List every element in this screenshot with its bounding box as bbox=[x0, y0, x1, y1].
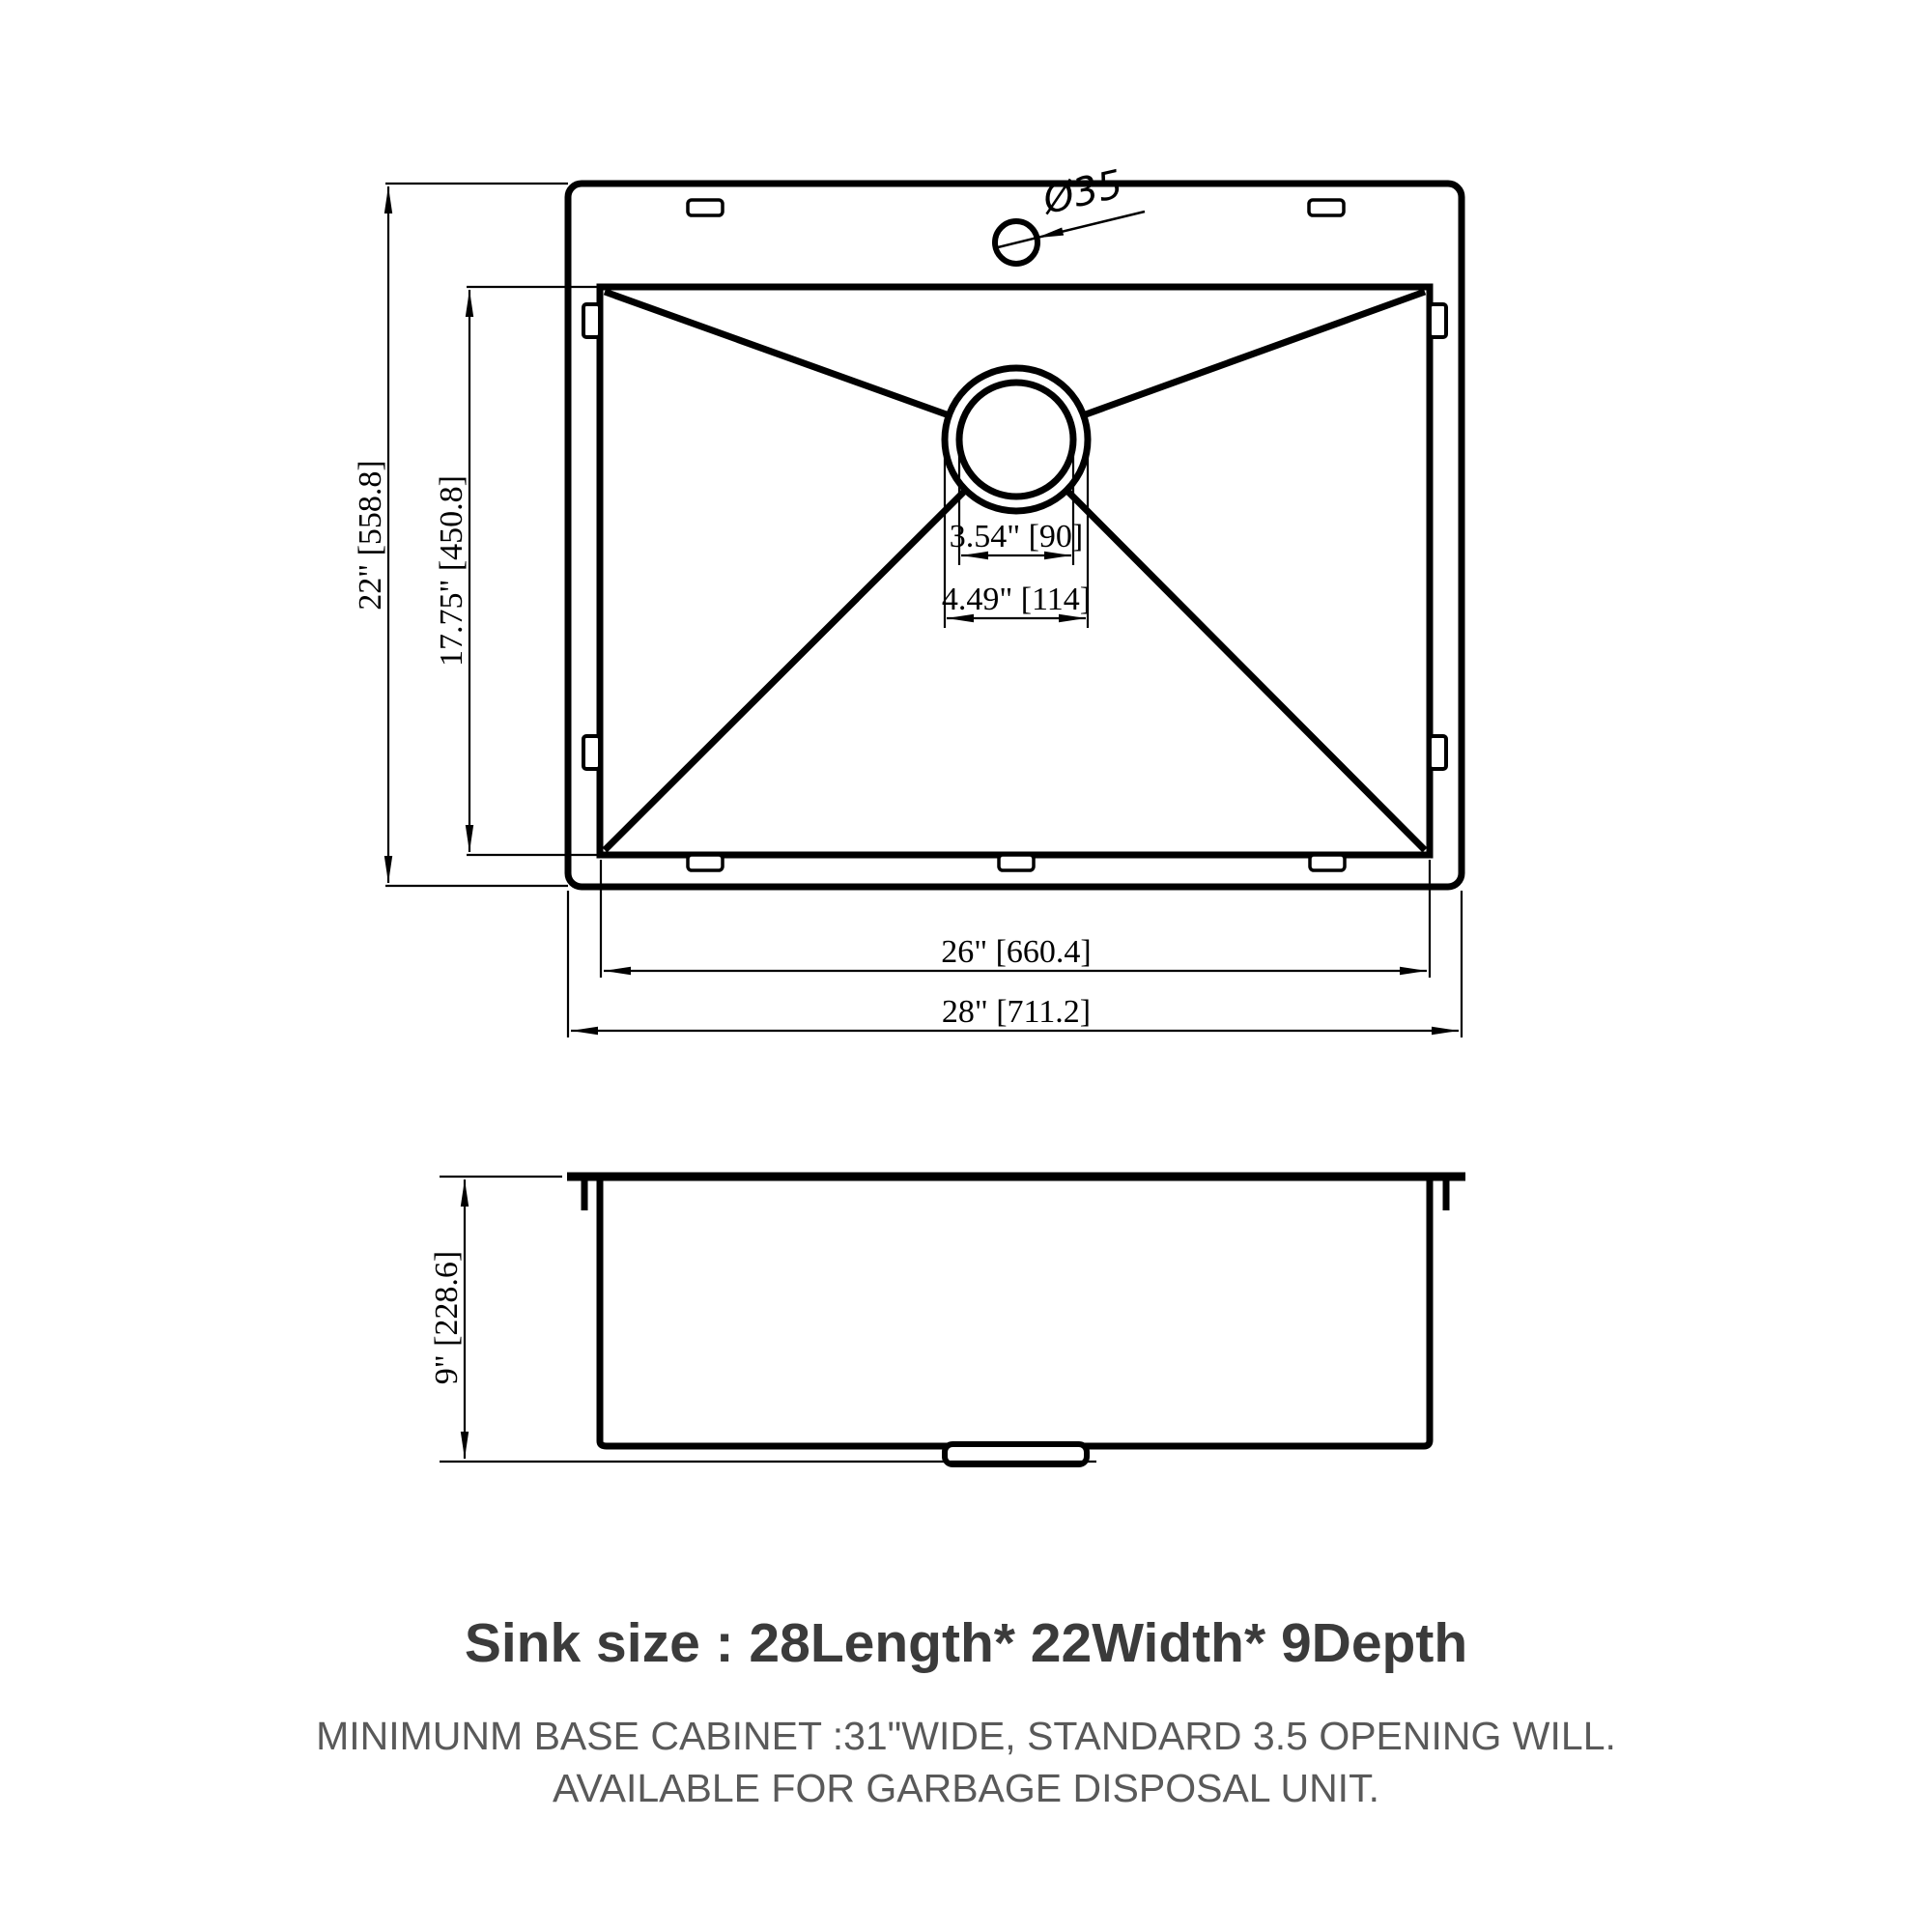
side-view: 9" [228.6] bbox=[429, 1177, 1465, 1464]
bowl-length-label: 26" [660.4] bbox=[941, 934, 1092, 970]
rim-tab-bottom-left bbox=[688, 855, 723, 870]
drain-inner-diameter-label: 3.54" [90] bbox=[950, 519, 1084, 554]
overall-length-label: 28" [711.2] bbox=[942, 994, 1091, 1030]
side-view-bowl-body bbox=[600, 1179, 1430, 1446]
cabinet-note-line1: MINIMUNM BASE CABINET :31"WIDE, STANDARD… bbox=[0, 1710, 1932, 1762]
rim-slot-right bbox=[1309, 200, 1344, 215]
clip-left-upper bbox=[583, 304, 600, 337]
dim-depth: 9" [228.6] bbox=[429, 1177, 1096, 1462]
clip-right-upper bbox=[1430, 304, 1446, 337]
bowl-width-label: 17.75" [450.8] bbox=[434, 475, 469, 667]
cabinet-note-line2: AVAILABLE FOR GARBAGE DISPOSAL UNIT. bbox=[0, 1762, 1932, 1814]
sink-dimension-drawing: Ø35 3.54" [90] bbox=[0, 0, 1932, 1932]
rim-tab-bottom-right bbox=[1310, 855, 1345, 870]
sink-size-title: Sink size : 28Length* 22Width* 9Depth bbox=[0, 1611, 1932, 1675]
drain-inner-circle bbox=[959, 383, 1073, 497]
top-view: Ø35 3.54" [90] bbox=[353, 162, 1462, 1037]
caption-block: Sink size : 28Length* 22Width* 9Depth MI… bbox=[0, 1611, 1932, 1814]
drain-outer-diameter-label: 4.49" [114] bbox=[942, 582, 1091, 617]
clip-right-lower bbox=[1430, 736, 1446, 769]
depth-label: 9" [228.6] bbox=[429, 1251, 465, 1385]
rim-slot-left bbox=[688, 200, 723, 215]
clip-left-lower bbox=[583, 736, 600, 769]
overall-width-label: 22" [558.8] bbox=[353, 460, 388, 611]
rim-tab-bottom-center bbox=[999, 855, 1034, 870]
